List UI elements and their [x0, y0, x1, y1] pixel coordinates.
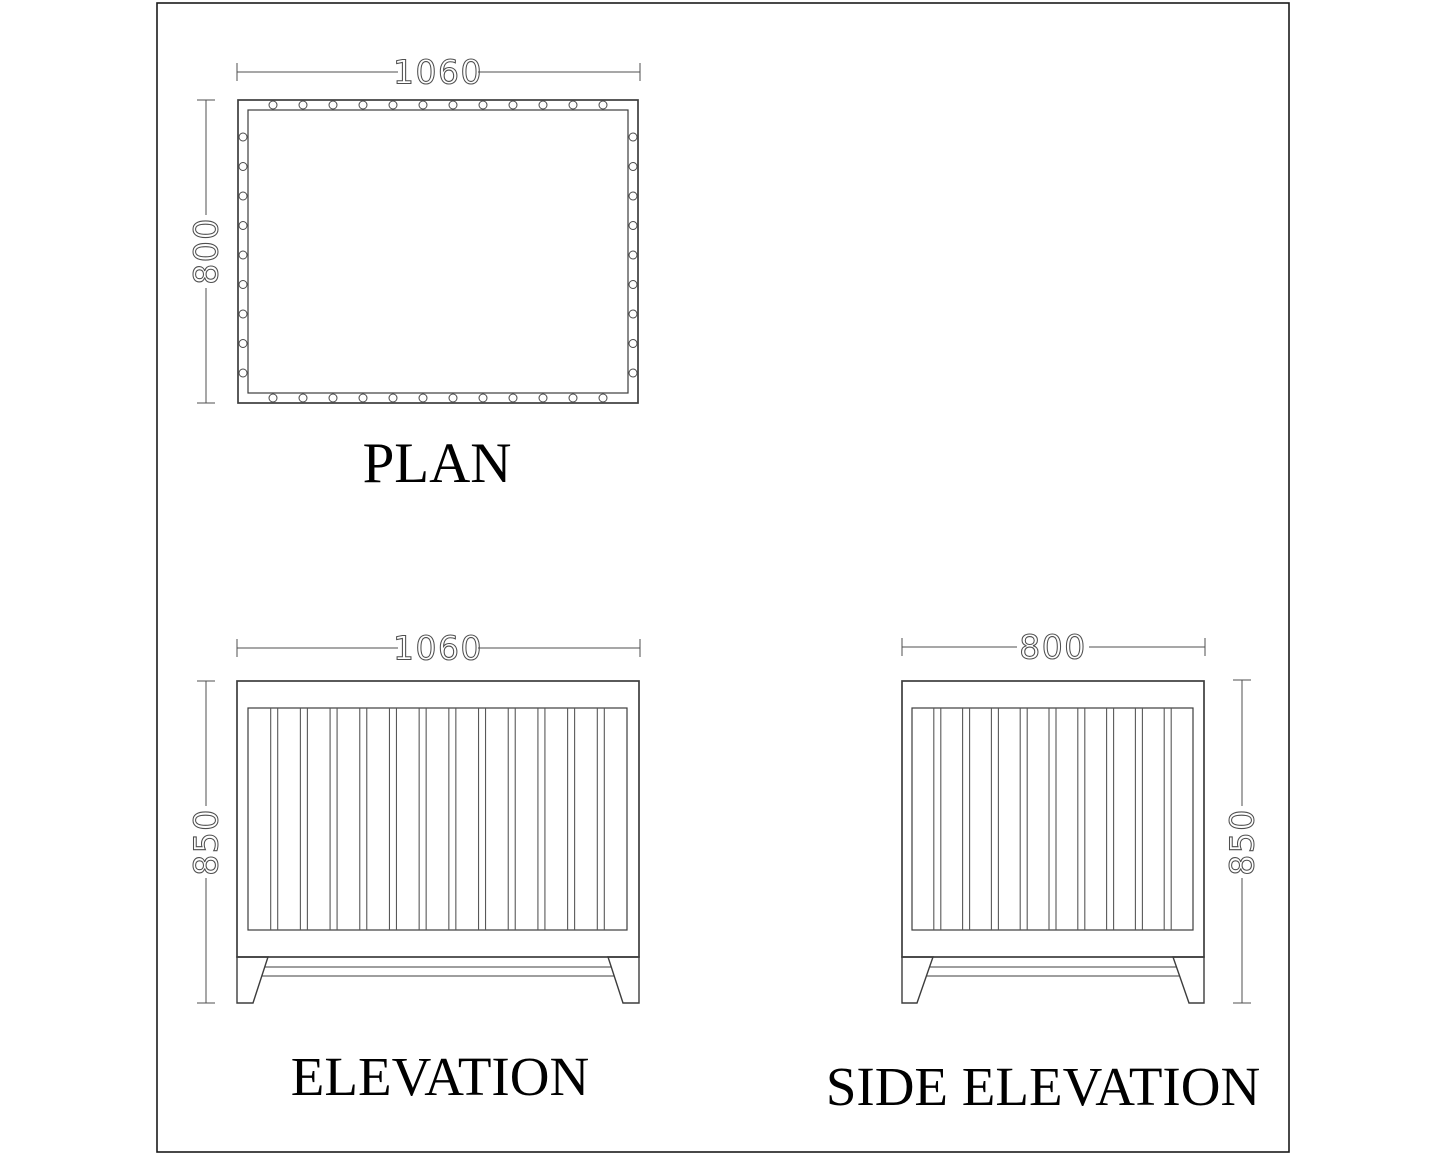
elevation-slat-panel: [248, 708, 627, 930]
hole-dot: [629, 251, 637, 259]
side-elevation-width-dimension: 800: [902, 628, 1205, 667]
hole-dot: [479, 394, 487, 402]
dimension-value: 1060: [393, 53, 483, 92]
drawing-sheet: 1060 800 PLAN: [0, 0, 1445, 1156]
hole-dot: [599, 394, 607, 402]
dimension-value: 800: [1019, 628, 1087, 667]
side-elevation-height-dimension: 850: [1223, 680, 1262, 1003]
hole-dot: [359, 101, 367, 109]
elevation-slats: [271, 708, 605, 930]
side-elevation-slat-panel: [912, 708, 1193, 930]
hole-dot: [329, 394, 337, 402]
hole-dot: [389, 394, 397, 402]
dimension-value: 850: [1223, 808, 1262, 876]
plan-outer-frame: [238, 100, 638, 403]
hole-dot: [449, 101, 457, 109]
elevation-view: 1060 850 ELEVATION: [187, 629, 641, 1108]
hole-dot: [239, 251, 247, 259]
plan-hole-pattern: [239, 101, 637, 402]
hole-dot: [449, 394, 457, 402]
hole-dot: [629, 281, 637, 289]
hole-dot: [479, 101, 487, 109]
hole-dot: [539, 394, 547, 402]
hole-dot: [299, 101, 307, 109]
elevation-view-label: ELEVATION: [291, 1046, 589, 1107]
hole-dot: [239, 192, 247, 200]
hole-dot: [239, 281, 247, 289]
side-elevation-right-leg: [1173, 957, 1204, 1003]
hole-dot: [269, 101, 277, 109]
hole-dot: [239, 310, 247, 318]
hole-dot: [629, 340, 637, 348]
hole-dot: [359, 394, 367, 402]
hole-dot: [629, 133, 637, 141]
hole-dot: [629, 310, 637, 318]
hole-dot: [509, 101, 517, 109]
dimension-value: 1060: [393, 629, 483, 668]
hole-dot: [329, 101, 337, 109]
hole-dot: [239, 163, 247, 171]
hole-dot: [389, 101, 397, 109]
hole-dot: [419, 101, 427, 109]
hole-dot: [419, 394, 427, 402]
cad-drawing: 1060 800 PLAN: [0, 0, 1445, 1156]
elevation-right-leg: [608, 957, 639, 1003]
plan-width-dimension: 1060: [237, 53, 640, 92]
side-elevation-view: 800 850 SIDE ELEVATION: [826, 628, 1262, 1118]
hole-dot: [539, 101, 547, 109]
hole-dot: [629, 163, 637, 171]
side-elevation-slats: [934, 708, 1171, 930]
plan-depth-dimension: 800: [187, 100, 226, 403]
side-elevation-body-frame: [902, 681, 1204, 957]
hole-dot: [299, 394, 307, 402]
hole-dot: [239, 133, 247, 141]
hole-dot: [269, 394, 277, 402]
plan-view: 1060 800 PLAN: [187, 53, 641, 496]
hole-dot: [569, 394, 577, 402]
hole-dot: [629, 222, 637, 230]
plan-inner-frame: [248, 110, 628, 393]
elevation-left-leg: [237, 957, 268, 1003]
hole-dot: [569, 101, 577, 109]
elevation-height-dimension: 850: [187, 681, 226, 1003]
hole-dot: [239, 369, 247, 377]
hole-dot: [629, 192, 637, 200]
elevation-body-frame: [237, 681, 639, 957]
sheet-border: [157, 3, 1289, 1152]
side-elevation-left-leg: [902, 957, 933, 1003]
hole-dot: [239, 222, 247, 230]
hole-dot: [599, 101, 607, 109]
hole-dot: [629, 369, 637, 377]
side-elevation-view-label: SIDE ELEVATION: [826, 1056, 1260, 1117]
hole-dot: [239, 340, 247, 348]
hole-dot: [509, 394, 517, 402]
dimension-value: 800: [187, 217, 226, 285]
elevation-width-dimension: 1060: [237, 629, 640, 668]
plan-view-label: PLAN: [363, 432, 512, 495]
dimension-value: 850: [187, 808, 226, 876]
